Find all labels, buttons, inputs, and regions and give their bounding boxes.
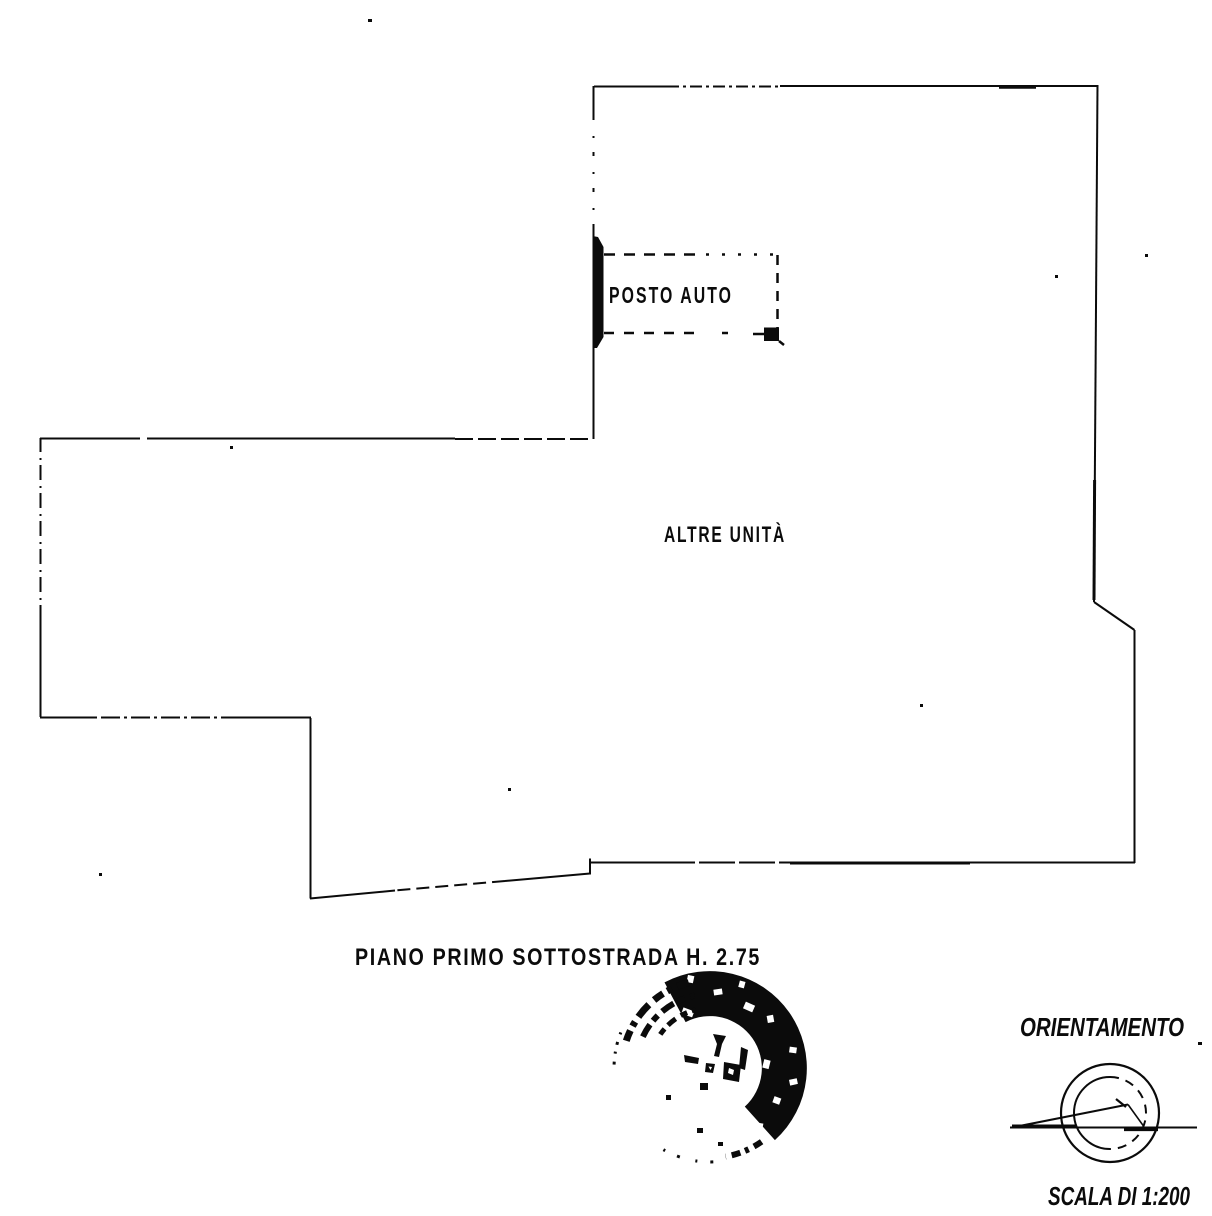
svg-text:SCALA DI 1:200: SCALA DI 1:200 [1048,1181,1190,1211]
svg-text:ORIENTAMENTO: ORIENTAMENTO [1020,1012,1184,1042]
svg-text:ALTRE UNITÀ: ALTRE UNITÀ [664,522,786,547]
svg-text:PIANO PRIMO SOTTOSTRADA H. 2.7: PIANO PRIMO SOTTOSTRADA H. 2.75 [355,944,761,971]
svg-text:POSTO AUTO: POSTO AUTO [609,282,733,308]
